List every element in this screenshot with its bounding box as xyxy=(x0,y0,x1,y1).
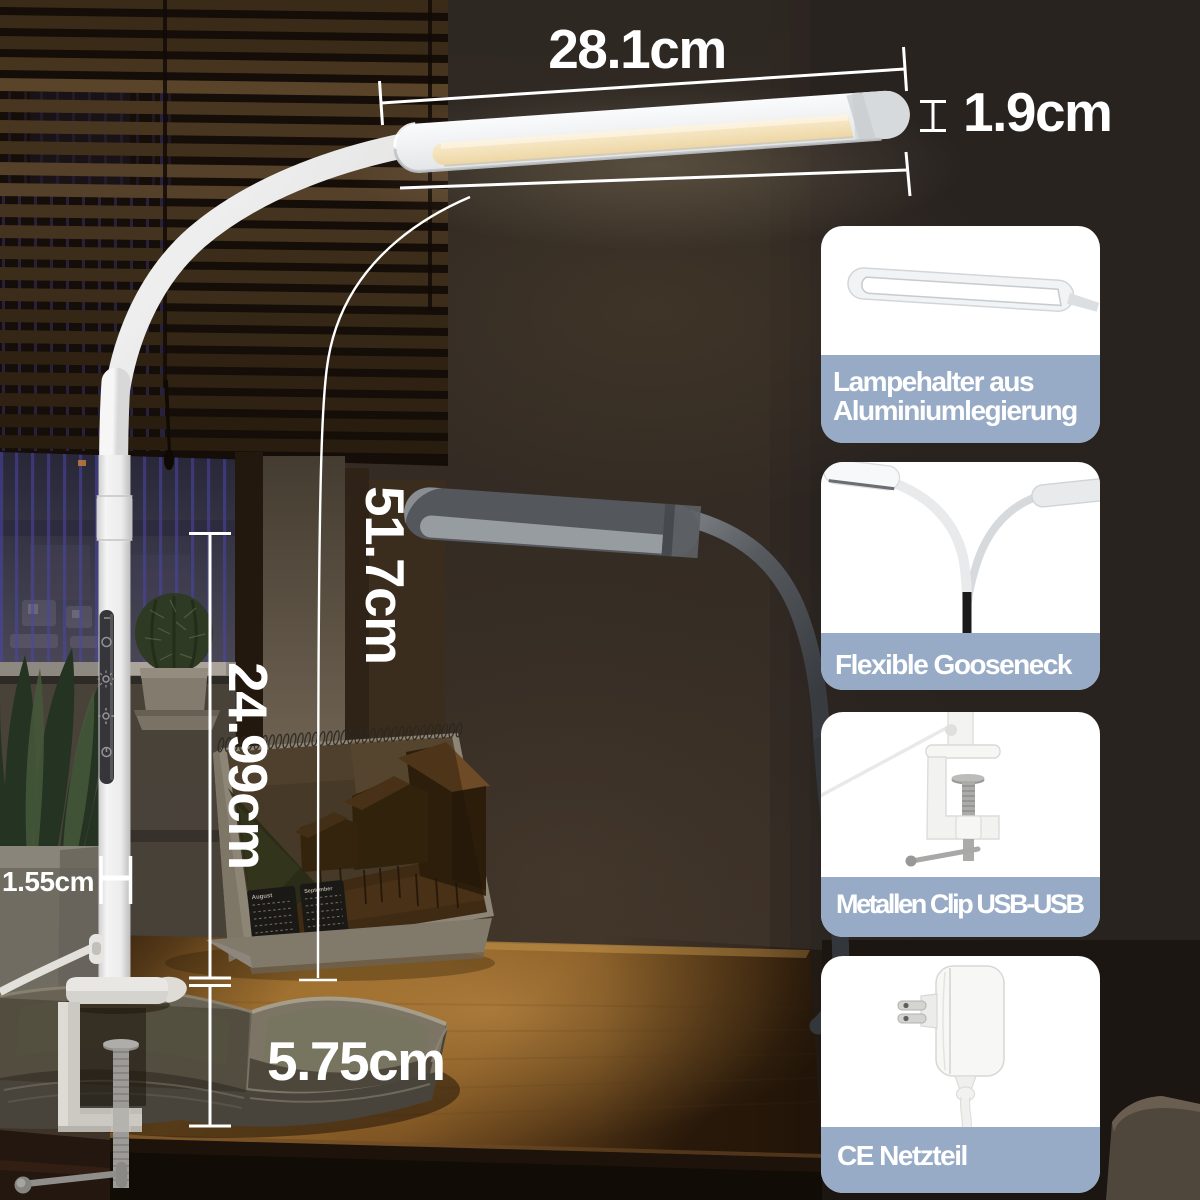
svg-text:Lampehalter aus: Lampehalter aus xyxy=(833,366,1034,397)
svg-text:28.1cm: 28.1cm xyxy=(548,18,726,80)
svg-text:24.99cm: 24.99cm xyxy=(217,662,279,869)
svg-text:5.75cm: 5.75cm xyxy=(267,1030,445,1092)
svg-text:Flexible Gooseneck: Flexible Gooseneck xyxy=(835,649,1073,680)
svg-text:CE Netzteil: CE Netzteil xyxy=(837,1140,967,1171)
svg-text:Metallen Clip USB-USB: Metallen Clip USB-USB xyxy=(836,889,1085,919)
svg-text:1.9cm: 1.9cm xyxy=(963,81,1111,143)
svg-text:51.7cm: 51.7cm xyxy=(354,486,416,664)
svg-text:Aluminiumlegierung: Aluminiumlegierung xyxy=(833,395,1077,426)
svg-text:1.55cm: 1.55cm xyxy=(2,866,94,897)
